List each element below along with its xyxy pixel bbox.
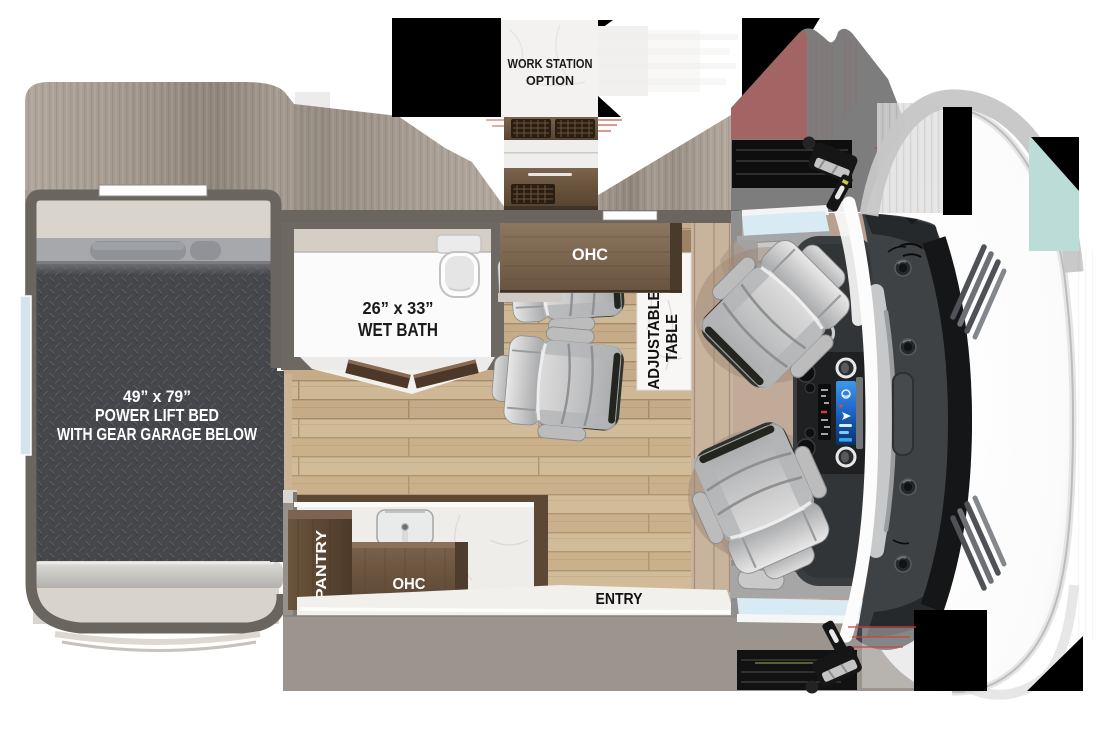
svg-text:OHC: OHC: [393, 576, 426, 593]
svg-text:ENTRY: ENTRY: [596, 591, 644, 608]
svg-text:POWER LIFT BED: POWER LIFT BED: [95, 405, 219, 425]
svg-text:WORK STATION: WORK STATION: [508, 56, 593, 71]
svg-text:WET BATH: WET BATH: [358, 320, 438, 340]
svg-text:26” x 33”: 26” x 33”: [363, 298, 434, 318]
svg-text:TABLE: TABLE: [664, 314, 681, 362]
svg-text:WITH GEAR GARAGE BELOW: WITH GEAR GARAGE BELOW: [57, 424, 257, 444]
svg-text:PANTRY: PANTRY: [313, 530, 330, 600]
svg-text:49” x 79”: 49” x 79”: [123, 387, 191, 406]
svg-text:ADJUSTABLE: ADJUSTABLE: [646, 291, 663, 390]
svg-text:OHC: OHC: [572, 246, 608, 264]
svg-text:OPTION: OPTION: [526, 73, 574, 88]
